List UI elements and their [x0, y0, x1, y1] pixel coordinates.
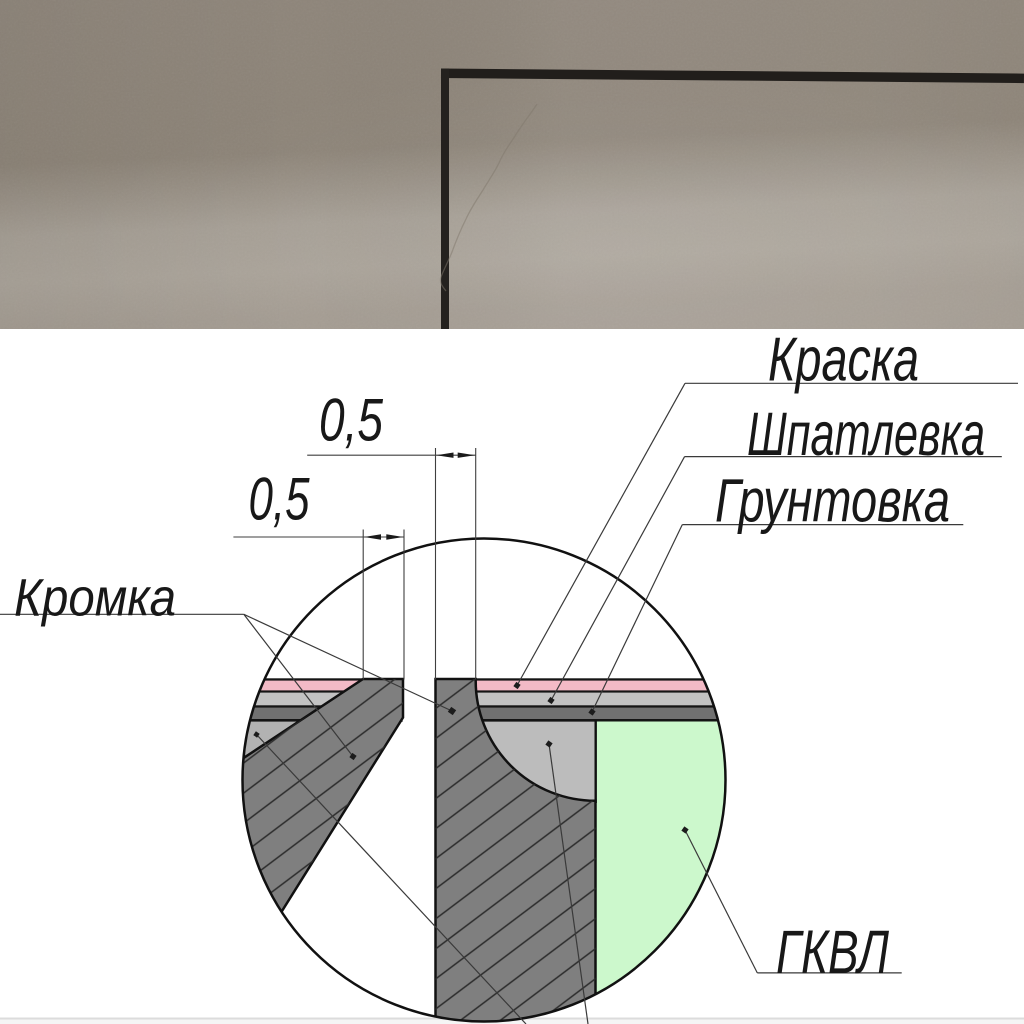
- svg-text:0,5: 0,5: [249, 465, 310, 532]
- svg-text:ГКВЛ: ГКВЛ: [776, 918, 889, 986]
- svg-text:0,5: 0,5: [319, 386, 383, 453]
- svg-text:Шпатлевка: Шпатлевка: [747, 400, 985, 468]
- svg-text:Грунтовка: Грунтовка: [715, 466, 950, 534]
- svg-text:Краска: Краска: [768, 326, 919, 395]
- svg-text:Кромка: Кромка: [14, 568, 176, 627]
